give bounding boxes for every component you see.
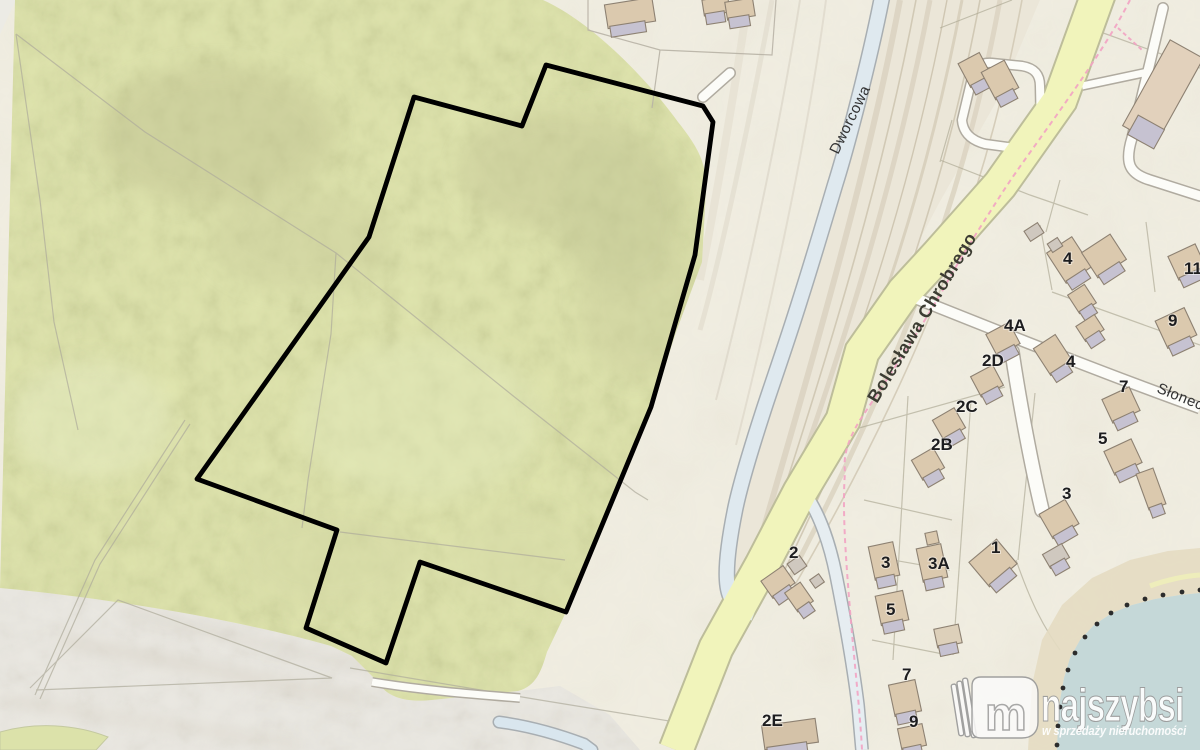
svg-text:5: 5: [886, 600, 895, 619]
svg-text:3: 3: [881, 553, 890, 572]
svg-text:9: 9: [1168, 311, 1177, 330]
svg-text:1: 1: [991, 538, 1000, 557]
svg-text:2: 2: [789, 543, 798, 562]
svg-text:w sprzedaży nieruchomości: w sprzedaży nieruchomości: [1042, 723, 1187, 738]
svg-text:4: 4: [1063, 249, 1073, 268]
svg-text:5: 5: [1098, 429, 1107, 448]
svg-text:m: m: [985, 687, 1027, 740]
svg-text:3A: 3A: [928, 554, 950, 573]
svg-text:4: 4: [1066, 352, 1076, 371]
svg-text:11: 11: [1184, 259, 1200, 278]
svg-text:4A: 4A: [1004, 316, 1026, 335]
svg-text:2B: 2B: [931, 435, 953, 454]
svg-text:2E: 2E: [762, 711, 783, 730]
svg-text:3: 3: [1062, 484, 1071, 503]
svg-text:7: 7: [902, 665, 911, 684]
svg-text:2C: 2C: [956, 397, 978, 416]
svg-text:9: 9: [909, 712, 918, 731]
svg-text:2D: 2D: [982, 351, 1004, 370]
svg-text:7: 7: [1119, 377, 1128, 396]
